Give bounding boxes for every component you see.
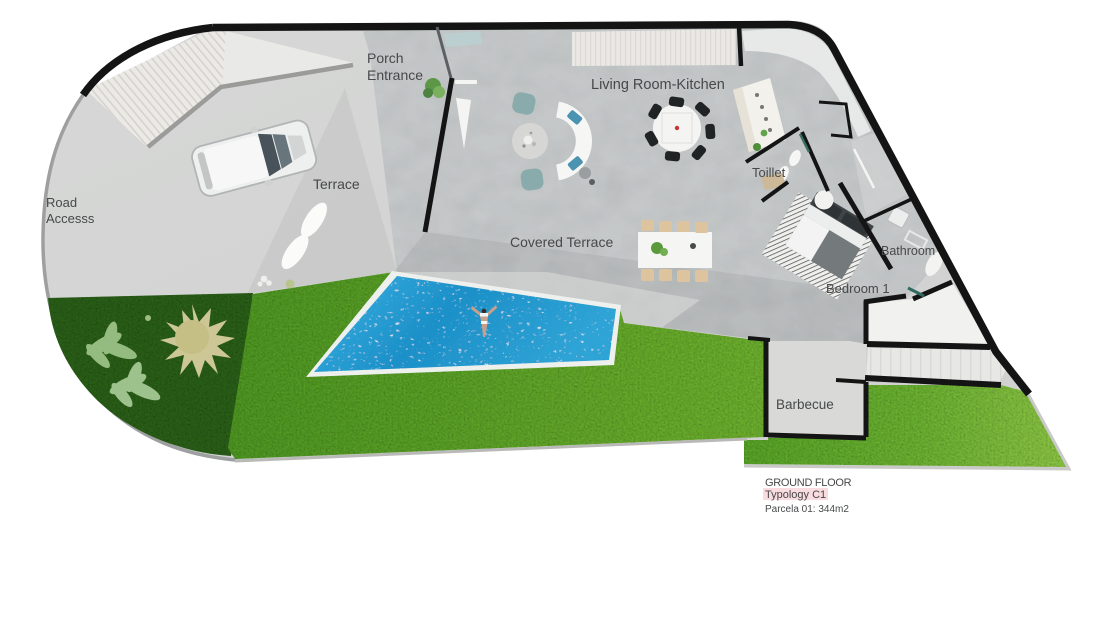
svg-text:Entrance: Entrance xyxy=(367,67,423,83)
svg-text:Accesss: Accesss xyxy=(46,211,95,226)
svg-text:Barbecue: Barbecue xyxy=(776,397,834,412)
svg-text:Living Room-Kitchen: Living Room-Kitchen xyxy=(591,77,725,93)
svg-text:Porch: Porch xyxy=(367,50,404,66)
svg-text:Typology C1: Typology C1 xyxy=(765,489,826,501)
svg-text:Road: Road xyxy=(46,195,77,210)
svg-text:Bedroom 1: Bedroom 1 xyxy=(826,281,890,296)
svg-text:Terrace: Terrace xyxy=(313,176,360,192)
svg-text:Bathroom: Bathroom xyxy=(881,244,935,258)
svg-text:Covered Terrace: Covered Terrace xyxy=(510,234,613,250)
svg-text:GROUND FLOOR: GROUND FLOOR xyxy=(765,477,852,489)
svg-text:Toillet: Toillet xyxy=(752,165,786,180)
svg-text:Parcela 01: 344m2: Parcela 01: 344m2 xyxy=(765,504,849,515)
